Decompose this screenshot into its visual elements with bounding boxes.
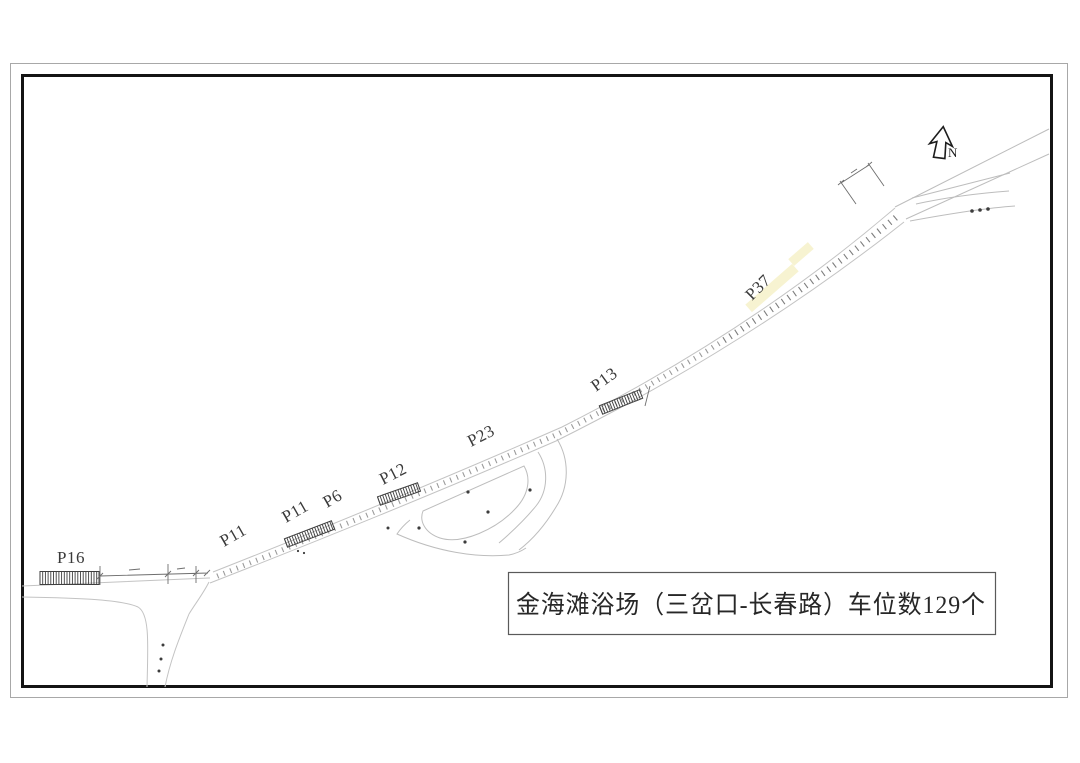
road-tick: [764, 311, 768, 316]
island-branch-bottom: [397, 520, 526, 556]
road-tick: [256, 558, 258, 563]
road-tick: [236, 566, 238, 571]
parking-label: P23: [464, 421, 498, 451]
parking-label: P12: [376, 459, 410, 489]
road-tick: [855, 246, 859, 251]
road-tick: [866, 237, 870, 242]
road-tick: [469, 469, 471, 474]
road-tick: [821, 271, 825, 276]
parking-strip-hatch: [604, 404, 607, 412]
road-tick: [694, 356, 697, 361]
road-dot: [528, 488, 531, 491]
road-tick: [578, 421, 580, 426]
road-tick: [799, 287, 803, 292]
road-tick: [353, 518, 355, 523]
road-tick: [392, 502, 394, 507]
road-tick: [872, 233, 876, 238]
main-road-lower-edge: [210, 222, 904, 583]
traffic-island: [422, 466, 528, 540]
parking-strip-hatch: [614, 400, 617, 408]
road-tick: [546, 436, 548, 441]
road-tick: [463, 472, 465, 477]
road-tick: [699, 353, 702, 357]
road-tick: [340, 524, 342, 529]
road-tick: [565, 427, 567, 432]
south-road-right-edge: [165, 582, 209, 687]
road-tick: [770, 307, 774, 312]
road-dot: [463, 540, 466, 543]
road-dot: [986, 207, 990, 211]
road-tick: [651, 381, 654, 386]
road-tick: [379, 507, 381, 512]
road-tick: [584, 418, 586, 423]
road-tick: [243, 563, 245, 568]
road-tick: [711, 345, 714, 349]
road-tick: [431, 486, 433, 491]
road-tick: [385, 505, 387, 510]
road-tick: [571, 424, 573, 429]
road-tick: [787, 295, 791, 300]
road-tick: [717, 342, 720, 346]
road-tick: [540, 439, 542, 444]
road-tick: [450, 478, 452, 483]
parking-strip-hatch: [378, 497, 381, 505]
road-tick: [501, 456, 503, 461]
road-tick: [596, 411, 598, 416]
road-dot: [486, 510, 489, 513]
parking-label: P16: [57, 548, 85, 567]
road-tick: [682, 363, 685, 368]
road-tick: [269, 553, 271, 558]
road-tick: [398, 499, 400, 504]
road-tick: [495, 458, 497, 463]
road-tick: [249, 560, 251, 565]
parking-strip-hatch: [413, 484, 416, 493]
road-tick: [424, 489, 426, 494]
road-tick: [746, 322, 750, 327]
road-tick: [405, 497, 407, 502]
road-tick: [527, 445, 529, 450]
road-tick: [347, 521, 349, 526]
parking-section-labels: P16P11P11P6P12P23P13P37: [57, 271, 775, 567]
road-tick: [217, 574, 219, 579]
road-tick: [893, 216, 897, 221]
parking-strip-hatch: [617, 399, 620, 407]
road-dot: [387, 527, 390, 530]
road-tick: [735, 330, 738, 335]
road-tick: [888, 220, 892, 225]
road-tick: [804, 283, 808, 288]
road-tick: [262, 555, 264, 560]
road-tick: [741, 326, 745, 331]
road-tick: [883, 224, 887, 229]
road-tick: [860, 241, 864, 246]
parking-strips: [40, 390, 643, 585]
road-tick: [366, 513, 368, 518]
road-tick: [663, 374, 666, 379]
road-tick: [223, 571, 225, 576]
island-branch-right-inner: [499, 452, 546, 543]
road-tick: [514, 450, 516, 455]
parking-label: P6: [320, 486, 346, 512]
road-tick: [781, 299, 785, 304]
road-tick: [816, 275, 820, 280]
road-tick: [534, 442, 536, 447]
road-tick: [758, 315, 762, 320]
road-tick: [482, 464, 484, 469]
road-tick: [793, 291, 797, 296]
road-dot: [162, 644, 165, 647]
parking-label: P11: [217, 520, 250, 550]
road-tick: [590, 415, 592, 420]
highlight-strip: [788, 242, 814, 266]
road-dot: [160, 658, 163, 661]
road-tick: [559, 431, 561, 436]
road-tick: [838, 258, 842, 263]
road-tick: [657, 377, 660, 382]
parking-strip-hatch: [411, 485, 414, 494]
north-label: N: [948, 145, 958, 160]
road-tick: [723, 337, 726, 343]
road-tick: [676, 367, 679, 371]
road-dot: [978, 208, 982, 212]
road-dot: [303, 552, 305, 554]
road-tick: [776, 303, 780, 308]
ne-fork-diagonal-upper: [895, 129, 1049, 207]
road-tick: [456, 475, 458, 480]
parking-strip-hatch: [383, 495, 386, 504]
parking-strip-hatch: [380, 496, 383, 505]
road-tick: [553, 434, 555, 439]
road-tick: [645, 384, 648, 389]
west-road-lower-edge-south-left: [22, 597, 148, 687]
road-tick: [275, 550, 277, 555]
drawing-page: N P16P11P11P6P12P23P13P37 金海滩浴场（三岔口-长春路）…: [0, 0, 1080, 763]
road-tick: [372, 510, 374, 515]
dimension-annotations: [97, 162, 884, 585]
parking-label: P37: [741, 271, 774, 304]
road-tick: [849, 250, 853, 255]
road-tick: [359, 515, 361, 520]
road-tick: [230, 568, 232, 573]
road-tick: [508, 453, 510, 458]
road-tick: [443, 480, 445, 485]
parking-strip-hatch: [408, 486, 411, 495]
road-tick: [688, 360, 691, 365]
road-dot: [970, 209, 974, 213]
east-branch-lower-edge: [910, 206, 1015, 221]
ne-fork-diagonal-lower: [906, 154, 1049, 219]
parking-strip-hatch: [624, 396, 627, 404]
title-box: 金海滩浴场（三岔口-长春路）车位数129个: [509, 573, 996, 635]
parking-label: P11: [279, 496, 312, 526]
road-tick: [810, 279, 814, 284]
road-tick: [521, 447, 523, 452]
road-tick: [437, 483, 439, 488]
road-tick: [705, 349, 708, 354]
road-tick: [489, 461, 491, 466]
road-dot: [417, 526, 420, 529]
road-tick: [752, 318, 756, 323]
title-text: 金海滩浴场（三岔口-长春路）车位数129个: [516, 591, 986, 619]
road-tick: [844, 254, 848, 259]
parking-plan-canvas: N P16P11P11P6P12P23P13P37 金海滩浴场（三岔口-长春路）…: [0, 0, 1080, 763]
parking-label: P13: [587, 363, 621, 395]
road-tick: [827, 267, 831, 272]
parking-strip-hatch: [629, 394, 632, 402]
road-tick: [833, 263, 837, 268]
road-tick: [877, 229, 881, 234]
road-tick: [282, 547, 284, 552]
road-dot: [297, 550, 299, 552]
road-tick: [729, 334, 732, 339]
road-tick: [669, 370, 672, 375]
road-dot: [466, 490, 469, 493]
road-dot: [158, 670, 161, 673]
road-tick: [476, 467, 478, 472]
dimension-northeast-segment: [838, 162, 884, 204]
